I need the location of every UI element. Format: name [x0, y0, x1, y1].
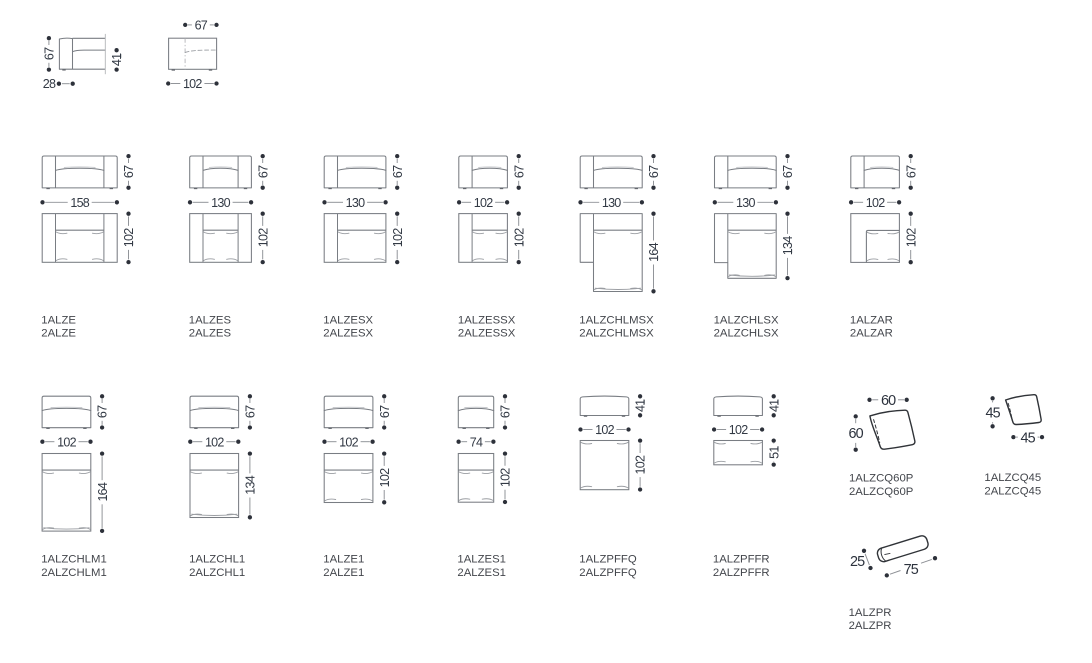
svg-text:134: 134: [244, 475, 258, 494]
svg-text:41: 41: [767, 399, 781, 412]
svg-text:1ALZE1: 1ALZE1: [323, 554, 364, 566]
svg-text:67: 67: [647, 165, 661, 178]
svg-text:2ALZCHL1: 2ALZCHL1: [189, 567, 245, 579]
svg-text:102: 102: [512, 228, 526, 247]
svg-text:1ALZPR: 1ALZPR: [849, 607, 892, 619]
svg-text:102: 102: [904, 228, 918, 247]
svg-text:102: 102: [866, 196, 885, 210]
svg-text:102: 102: [474, 196, 493, 210]
svg-text:1ALZESSX: 1ALZESSX: [458, 314, 516, 326]
svg-text:1ALZESX: 1ALZESX: [323, 314, 373, 326]
svg-text:2ALZCQ45: 2ALZCQ45: [984, 485, 1041, 497]
svg-text:102: 102: [499, 468, 513, 487]
svg-text:130: 130: [346, 196, 365, 210]
svg-text:45: 45: [985, 406, 1000, 422]
svg-text:2ALZPR: 2ALZPR: [849, 620, 892, 632]
svg-text:102: 102: [122, 228, 136, 247]
svg-text:102: 102: [729, 423, 748, 437]
svg-text:1ALZAR: 1ALZAR: [850, 314, 893, 326]
svg-text:102: 102: [595, 423, 614, 437]
svg-text:2ALZESX: 2ALZESX: [323, 328, 373, 340]
svg-text:2ALZCQ60P: 2ALZCQ60P: [849, 486, 913, 498]
svg-text:102: 102: [205, 435, 224, 449]
svg-text:1ALZPFFQ: 1ALZPFFQ: [579, 554, 637, 566]
svg-text:2ALZPFFR: 2ALZPFFR: [713, 567, 770, 579]
svg-text:102: 102: [391, 228, 405, 247]
svg-text:67: 67: [499, 405, 513, 418]
svg-text:130: 130: [602, 196, 621, 210]
svg-text:2ALZE1: 2ALZE1: [323, 567, 364, 579]
svg-text:2ALZCHLM1: 2ALZCHLM1: [41, 567, 107, 579]
svg-text:1ALZCHLMSX: 1ALZCHLMSX: [579, 314, 654, 326]
svg-text:130: 130: [736, 196, 755, 210]
svg-text:67: 67: [43, 47, 57, 60]
svg-text:1ALZCHLM1: 1ALZCHLM1: [41, 554, 107, 566]
svg-text:1ALZCQ60P: 1ALZCQ60P: [849, 473, 913, 485]
svg-text:102: 102: [339, 435, 358, 449]
svg-text:45: 45: [1021, 430, 1036, 446]
svg-text:102: 102: [57, 435, 76, 449]
svg-text:1ALZCHLSX: 1ALZCHLSX: [714, 314, 779, 326]
svg-text:25: 25: [850, 554, 865, 570]
svg-text:60: 60: [849, 426, 864, 442]
svg-text:51: 51: [767, 446, 781, 459]
svg-text:102: 102: [634, 455, 648, 474]
svg-text:67: 67: [244, 405, 258, 418]
svg-text:130: 130: [211, 196, 230, 210]
svg-text:2ALZCHLSX: 2ALZCHLSX: [714, 328, 779, 340]
svg-text:60: 60: [881, 393, 896, 409]
svg-text:67: 67: [512, 165, 526, 178]
svg-text:2ALZESSX: 2ALZESSX: [458, 328, 516, 340]
svg-text:102: 102: [256, 228, 270, 247]
svg-text:1ALZES1: 1ALZES1: [457, 554, 506, 566]
svg-text:102: 102: [183, 77, 202, 91]
svg-text:67: 67: [391, 165, 405, 178]
svg-text:67: 67: [96, 405, 110, 418]
svg-text:102: 102: [378, 468, 392, 487]
svg-text:67: 67: [378, 405, 392, 418]
svg-text:2ALZAR: 2ALZAR: [850, 328, 893, 340]
svg-text:2ALZE: 2ALZE: [41, 328, 76, 340]
svg-text:75: 75: [904, 562, 919, 578]
svg-text:41: 41: [634, 399, 648, 412]
svg-text:134: 134: [781, 236, 795, 255]
svg-text:28: 28: [43, 77, 56, 91]
svg-text:67: 67: [122, 165, 136, 178]
svg-text:2ALZPFFQ: 2ALZPFFQ: [579, 567, 637, 579]
svg-text:1ALZES: 1ALZES: [189, 314, 232, 326]
svg-text:74: 74: [470, 435, 483, 449]
svg-text:1ALZPFFR: 1ALZPFFR: [713, 554, 770, 566]
svg-text:1ALZCHL1: 1ALZCHL1: [189, 554, 245, 566]
svg-text:67: 67: [195, 19, 208, 33]
svg-text:67: 67: [781, 165, 795, 178]
svg-text:67: 67: [256, 165, 270, 178]
svg-text:164: 164: [96, 482, 110, 501]
svg-text:2ALZES: 2ALZES: [189, 328, 232, 340]
svg-text:2ALZES1: 2ALZES1: [457, 567, 506, 579]
svg-text:2ALZCHLMSX: 2ALZCHLMSX: [579, 328, 654, 340]
svg-text:1ALZCQ45: 1ALZCQ45: [984, 472, 1041, 484]
svg-text:1ALZE: 1ALZE: [41, 314, 76, 326]
svg-text:41: 41: [110, 53, 124, 66]
svg-text:164: 164: [647, 242, 661, 261]
svg-text:158: 158: [70, 196, 89, 210]
svg-text:67: 67: [904, 165, 918, 178]
